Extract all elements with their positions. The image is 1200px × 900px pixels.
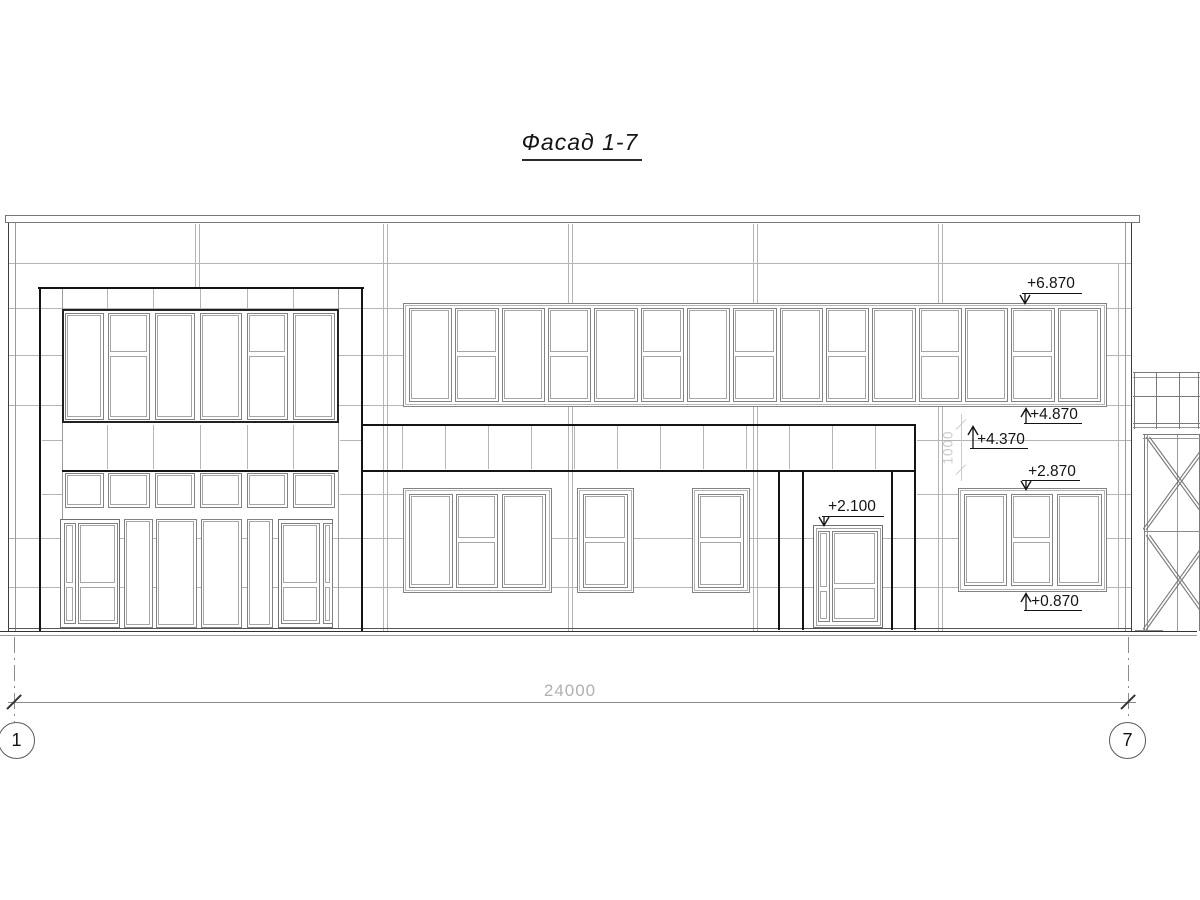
band-tile-joint	[617, 426, 618, 469]
cross-bracing	[1143, 434, 1200, 632]
elevation-arrow-down-icon	[817, 515, 831, 527]
elevation-arrow-down-icon	[1019, 479, 1033, 491]
glazing-sash	[874, 310, 912, 399]
glazing-sash	[820, 533, 827, 587]
wall-joint-line	[42, 494, 62, 495]
glazing-sash	[735, 310, 773, 352]
elevation-label: +6.870	[991, 275, 1111, 293]
portal-left-stile-line	[39, 287, 42, 631]
glazing-sash	[80, 587, 115, 621]
portal-tile-joint	[153, 289, 154, 310]
glazing-sash	[283, 587, 317, 621]
band-tile-joint	[746, 426, 747, 469]
svg-line	[1143, 437, 1200, 530]
building-base-line	[8, 628, 1131, 629]
glazing-sash	[550, 310, 588, 352]
axis-number-left: 1	[11, 730, 21, 751]
band-top-thick-line	[362, 424, 916, 426]
svg-line	[1146, 535, 1200, 630]
glazing-sash	[158, 521, 194, 625]
svg-line	[1150, 437, 1200, 530]
glazing-sash	[249, 521, 270, 625]
glazing-sash	[1013, 310, 1051, 352]
svg-line	[1146, 437, 1200, 530]
ground-line	[0, 631, 1197, 632]
band-bottom-thick-line	[62, 470, 338, 472]
glazing-sash	[966, 496, 1004, 583]
glazing-sash	[411, 310, 449, 399]
glazing-sash	[126, 521, 150, 625]
glazing-sash	[458, 496, 495, 538]
parapet-coping	[5, 215, 1140, 223]
column-line	[753, 224, 754, 631]
title-underline	[522, 159, 642, 161]
glazing-sash	[110, 475, 147, 505]
elevation-label: +2.870	[992, 463, 1112, 481]
glazing-sash	[67, 315, 101, 417]
portal-tile-joint	[293, 289, 294, 310]
portal-tile-joint	[247, 425, 248, 469]
glazing-sash	[585, 542, 625, 585]
elevation-arrow-up-icon	[1019, 592, 1033, 612]
column-line	[383, 224, 384, 631]
column-line	[757, 224, 758, 631]
elevation-arrow-up-icon	[966, 425, 980, 449]
wall-joint-line	[1118, 263, 1119, 628]
glazing-sash	[1013, 356, 1051, 399]
railing-post	[1198, 372, 1199, 429]
elevation-label: +4.370	[941, 431, 1061, 449]
glazing-sash	[921, 310, 959, 352]
svg-line	[1146, 437, 1200, 530]
stair-foot-line	[1135, 630, 1163, 631]
wall-joint-line	[340, 494, 403, 495]
elevation-arrow-up-icon	[1019, 407, 1033, 424]
glazing-sash	[249, 315, 285, 352]
railing-post	[1156, 372, 1157, 429]
glazing-sash	[202, 475, 239, 505]
glazing-sash	[585, 496, 625, 538]
glazing-sash	[921, 356, 959, 399]
column-line	[387, 224, 388, 631]
portal-top-line	[38, 287, 364, 290]
glazing-sash	[689, 310, 727, 399]
facade-drawing-sheet: Фасад 1-7 24000 1000 1 7 +6.870+4.870+4.…	[0, 0, 1200, 900]
overall-dimension-text: 24000	[470, 681, 670, 701]
glazing-sash	[202, 315, 239, 417]
railing-post	[1179, 372, 1180, 429]
glazing-sash	[157, 475, 192, 505]
glazing-sash	[110, 356, 147, 417]
portal-tile-joint	[107, 425, 108, 469]
glazing-sash	[1013, 542, 1050, 583]
svg-line	[1146, 535, 1200, 630]
glazing-sash	[325, 587, 330, 621]
glazing-sash	[67, 475, 101, 505]
glazing-sash	[596, 310, 634, 399]
glazing-sash	[643, 356, 681, 399]
band-tile-joint	[574, 426, 575, 469]
glazing-sash	[157, 315, 192, 417]
column-line	[942, 224, 943, 631]
glazing-sash	[457, 356, 495, 399]
portal-right-stile-line	[361, 287, 364, 631]
glazing-sash	[80, 525, 115, 583]
glazing-sash	[700, 542, 741, 585]
door-pilaster-line	[891, 470, 893, 630]
ground-line-lower	[0, 635, 1197, 636]
railing-mid-rail	[1133, 396, 1200, 397]
band-tile-joint	[875, 426, 876, 469]
band-tile-joint	[445, 426, 446, 469]
glazing-sash	[283, 525, 317, 583]
glazing-sash	[1013, 496, 1050, 538]
band-bottom-thick-line	[362, 470, 916, 472]
door-pilaster-line	[778, 470, 780, 630]
column-line	[568, 224, 569, 631]
glazing-sash	[834, 588, 875, 619]
svg-line	[1143, 535, 1200, 630]
band-tile-joint	[789, 426, 790, 469]
elevation-label: +4.870	[994, 406, 1114, 424]
railing-rail	[1133, 377, 1200, 378]
band-tile-joint	[703, 426, 704, 469]
column-line	[938, 224, 939, 631]
band-tile-joint	[832, 426, 833, 469]
portal-tile-joint	[153, 425, 154, 469]
portal-tile-joint	[293, 425, 294, 469]
glazing-sash	[700, 496, 741, 538]
wall-right-edge-inner	[1125, 223, 1126, 631]
portal-tile-joint	[247, 289, 248, 310]
elevation-arrow-down-icon	[1018, 292, 1032, 305]
axis-line-7	[1128, 637, 1129, 721]
axis-bubble-7: 7	[1109, 722, 1146, 759]
band-tile-joint	[402, 426, 403, 469]
band-tile-joint	[660, 426, 661, 469]
wall-left-edge	[8, 223, 9, 631]
glazing-sash	[834, 533, 875, 584]
railing-top-rail	[1133, 372, 1200, 373]
drawing-title: Фасад 1-7	[480, 129, 680, 156]
railing-bottom-rail	[1133, 423, 1200, 424]
glazing-sash	[782, 310, 820, 399]
wall-joint-line	[42, 440, 62, 441]
glazing-sash	[643, 310, 681, 352]
overall-dimension-line	[8, 702, 1136, 703]
band-tile-joint	[488, 426, 489, 469]
elevation-leader-line	[822, 516, 884, 517]
column-line	[199, 224, 200, 287]
glazing-sash	[504, 310, 542, 399]
glazing-sash	[550, 356, 588, 399]
glazing-sash	[820, 591, 827, 619]
glazing-sash	[1059, 496, 1099, 583]
wall-left-edge-inner	[15, 223, 16, 631]
portal-tile-joint	[200, 425, 201, 469]
band-tile-joint	[531, 426, 532, 469]
glazing-sash	[411, 496, 450, 585]
elevation-label: +2.100	[792, 498, 912, 516]
glazing-sash	[249, 356, 285, 417]
glazing-sash	[735, 356, 773, 399]
railing-rail	[1133, 427, 1200, 428]
axis-bubble-1: 1	[0, 722, 35, 759]
wall-joint-line	[9, 263, 1131, 264]
glazing-sash	[110, 315, 147, 352]
column-line	[572, 224, 573, 631]
axis-line-1	[14, 637, 15, 722]
portal-tile-joint	[200, 289, 201, 310]
column-line	[195, 224, 196, 287]
glazing-sash	[458, 542, 495, 585]
glazing-sash	[1060, 310, 1098, 399]
svg-line	[1150, 535, 1200, 630]
glazing-sash	[504, 496, 543, 585]
glazing-sash	[967, 310, 1005, 399]
glazing-sash	[66, 525, 73, 583]
glazing-sash	[828, 310, 866, 352]
railing-post	[1134, 372, 1135, 429]
axis-number-right: 7	[1122, 730, 1132, 751]
glazing-sash	[295, 475, 332, 505]
glazing-sash	[828, 356, 866, 399]
door-pilaster-line	[802, 470, 804, 630]
portal-tile-joint	[107, 289, 108, 310]
wall-joint-line	[340, 440, 362, 441]
glazing-sash	[325, 525, 330, 583]
glazing-sash	[457, 310, 495, 352]
glazing-sash	[249, 475, 285, 505]
band-end-line	[914, 424, 916, 630]
glazing-sash	[295, 315, 332, 417]
elevation-label: +0.870	[995, 593, 1115, 611]
glazing-sash	[66, 587, 73, 621]
glazing-sash	[203, 521, 239, 625]
